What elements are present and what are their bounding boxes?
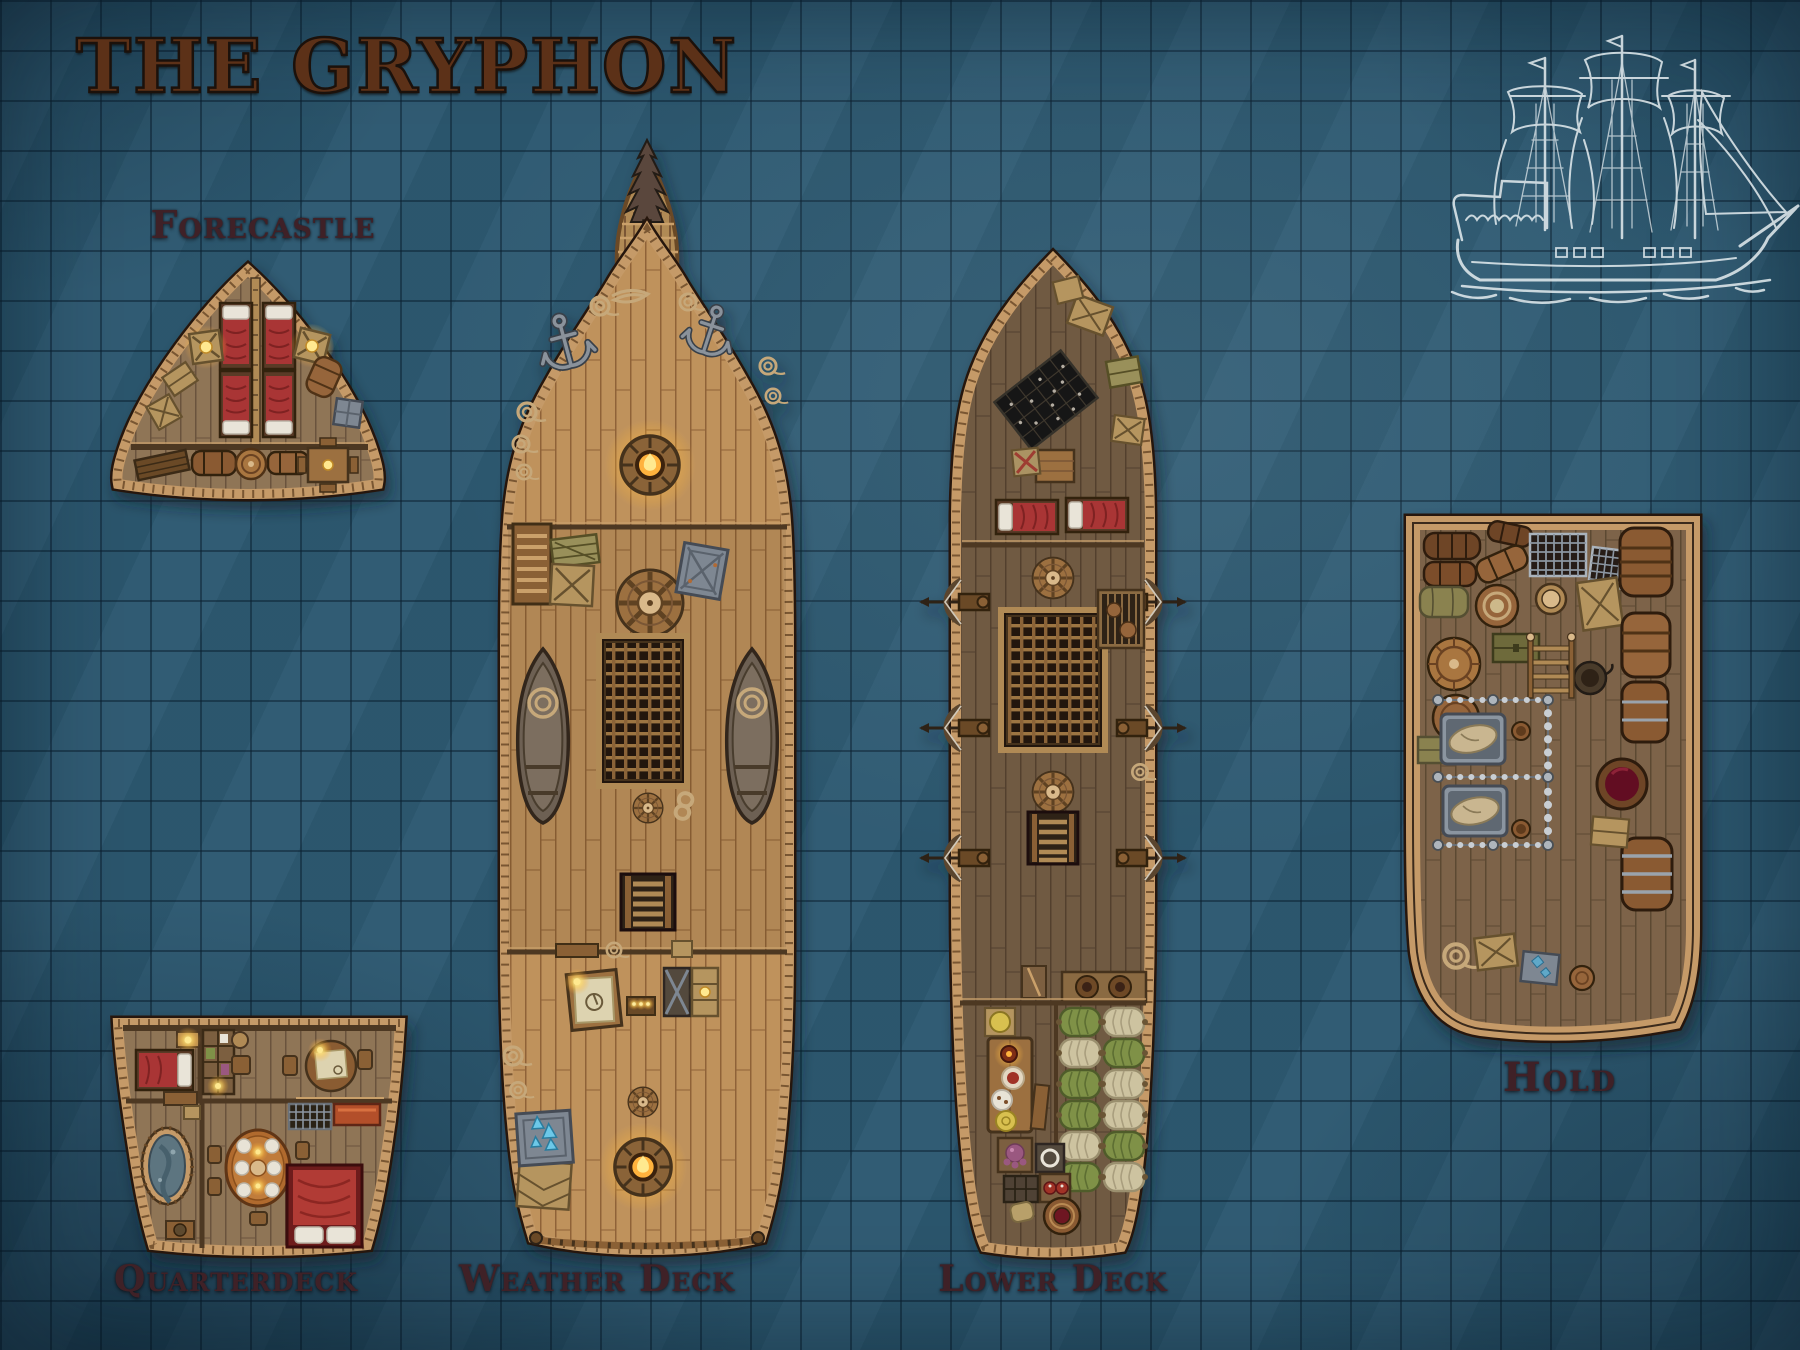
crate-stack — [550, 534, 600, 606]
crate-under-vat — [1591, 816, 1629, 847]
captain-bed — [287, 1165, 362, 1247]
bow-table — [1036, 450, 1074, 482]
stool — [232, 1032, 248, 1048]
cargo-hatch-grate — [599, 636, 687, 786]
label-hold: Hold — [1503, 1054, 1617, 1101]
label-quarterdeck: Quarterdeck — [114, 1258, 358, 1300]
map-table — [563, 965, 622, 1031]
label-lower-deck: Lower Deck — [938, 1258, 1167, 1300]
capstan — [1033, 558, 1074, 599]
companionway-stairs — [1028, 812, 1078, 864]
bathtub — [142, 1128, 192, 1204]
label-forecastle: Forecastle — [150, 202, 375, 247]
label-weather-deck: Weather Deck — [459, 1258, 735, 1300]
hold-plan — [1413, 520, 1693, 1034]
stern-crate-pair — [664, 968, 721, 1016]
barrel-cluster — [192, 449, 308, 479]
capstan — [617, 570, 683, 636]
cargo-hatch-grate — [1001, 610, 1105, 750]
cabin-bed — [136, 1050, 193, 1090]
metal-anchor-crate — [676, 543, 728, 600]
crew-bed — [996, 500, 1058, 534]
metal-crate — [333, 398, 362, 427]
brig-grate — [289, 1104, 331, 1129]
weather-deck-plan — [504, 140, 789, 1250]
lower-deck-plan — [919, 258, 1187, 1253]
side-stand — [166, 1221, 194, 1239]
quarterdeck-plan — [118, 1023, 400, 1251]
stern-bench — [556, 944, 598, 957]
ship-sketch-icon — [1452, 36, 1798, 303]
small-winch — [628, 1087, 658, 1117]
wine-vat — [1597, 759, 1647, 809]
bed-chest — [164, 1092, 197, 1105]
crew-bed — [1066, 498, 1128, 532]
companionway-stairs — [621, 874, 675, 930]
cook-pots — [1062, 972, 1146, 1002]
small-winch — [633, 793, 663, 823]
prisoner-cot — [1443, 786, 1507, 836]
capstan — [1033, 772, 1074, 813]
chair — [232, 1056, 250, 1074]
small-wall-crate — [184, 1106, 200, 1119]
cabinet-shelves — [203, 1030, 234, 1097]
mop-stand — [1022, 966, 1046, 998]
prisoner-cot — [1441, 714, 1505, 764]
orange-bench — [334, 1104, 380, 1125]
candle-stand — [627, 997, 655, 1015]
big-barrel-bottom-right — [1622, 838, 1672, 910]
forecastle-plan — [117, 270, 378, 494]
stern-crate — [672, 941, 692, 957]
page-title: THE GRYPHON — [76, 24, 738, 110]
gem-crate — [516, 1110, 573, 1209]
fire-bowl — [598, 1122, 687, 1211]
fire-bowl — [604, 419, 696, 511]
deck-stairs — [513, 524, 551, 604]
animal-pen — [1098, 590, 1144, 648]
red-x-crate — [1012, 448, 1041, 477]
